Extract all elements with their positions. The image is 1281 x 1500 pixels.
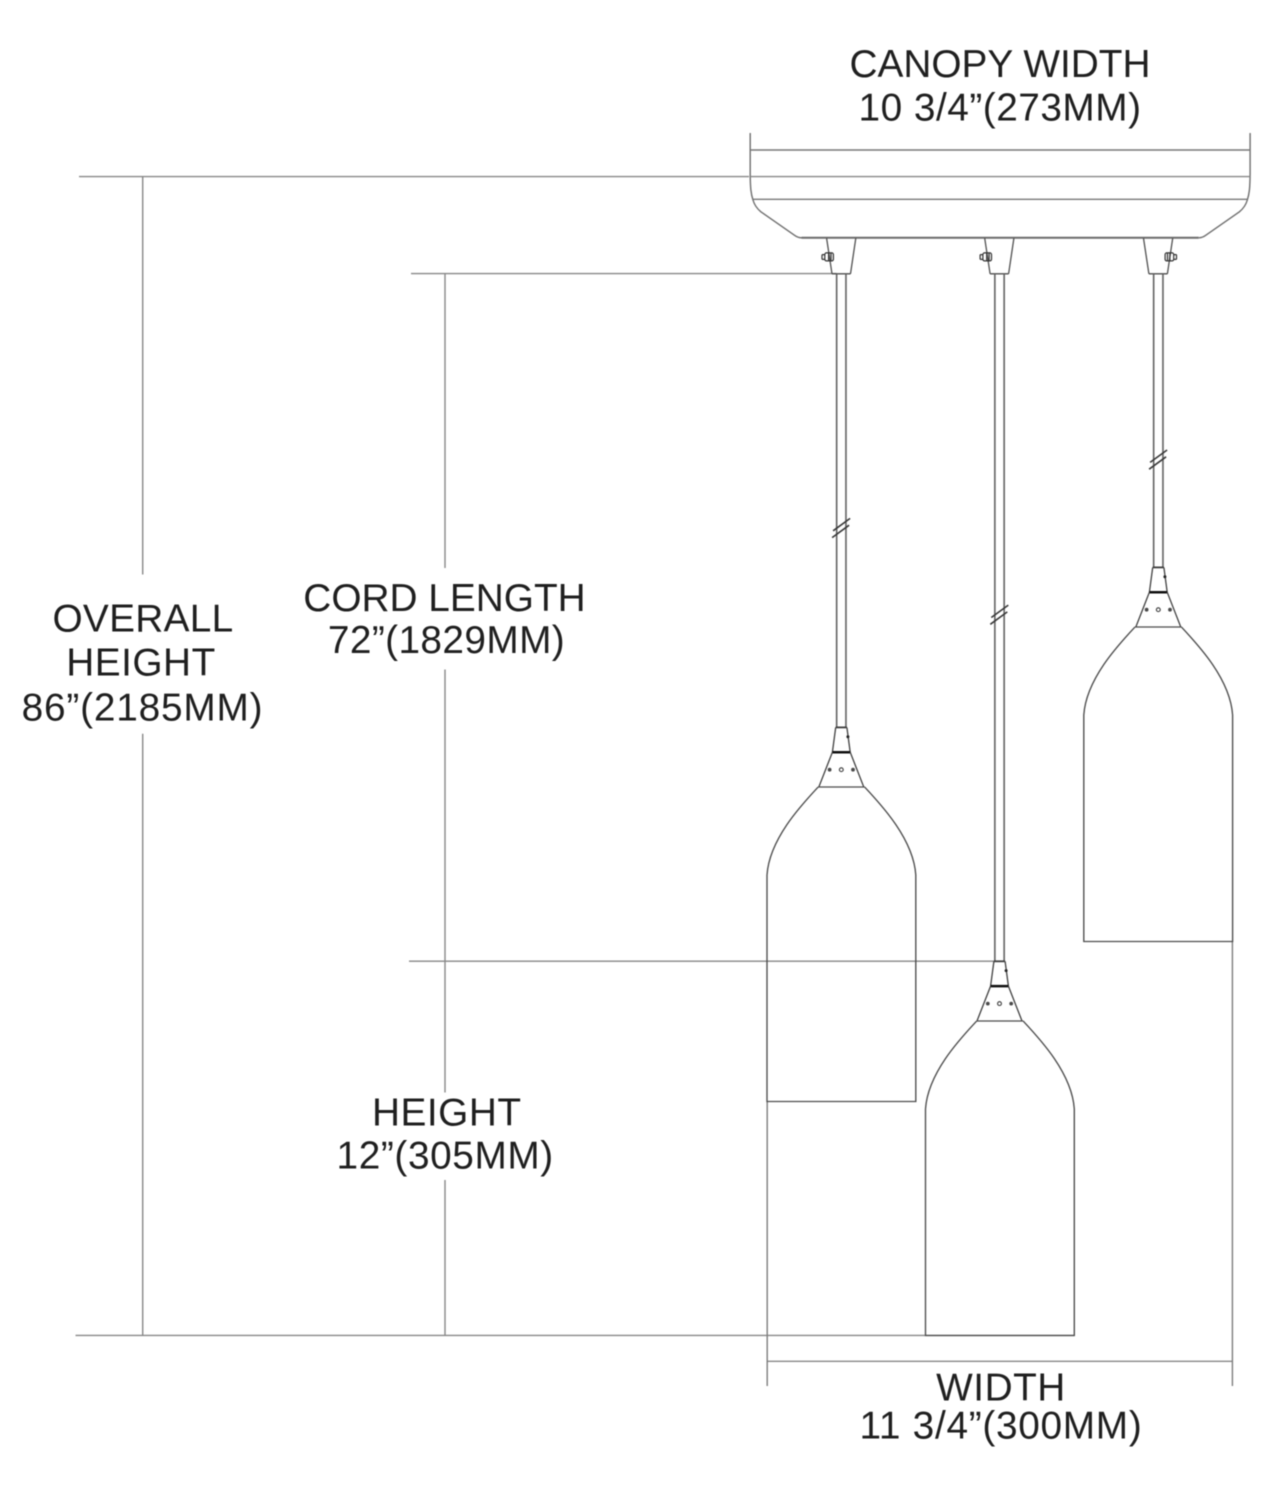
- svg-text:HEIGHT: HEIGHT: [66, 641, 216, 684]
- svg-text:11 3/4”(300MM): 11 3/4”(300MM): [860, 1405, 1143, 1448]
- svg-text:10 3/4”(273MM): 10 3/4”(273MM): [859, 86, 1142, 129]
- svg-text:12”(305MM): 12”(305MM): [337, 1135, 554, 1178]
- svg-text:HEIGHT: HEIGHT: [372, 1092, 522, 1135]
- svg-text:CANOPY WIDTH: CANOPY WIDTH: [849, 43, 1150, 86]
- svg-text:72”(1829MM): 72”(1829MM): [328, 619, 565, 662]
- svg-text:86”(2185MM): 86”(2185MM): [22, 687, 264, 730]
- svg-text:OVERALL: OVERALL: [52, 598, 233, 641]
- svg-text:WIDTH: WIDTH: [936, 1367, 1066, 1410]
- svg-text:CORD LENGTH: CORD LENGTH: [303, 577, 585, 620]
